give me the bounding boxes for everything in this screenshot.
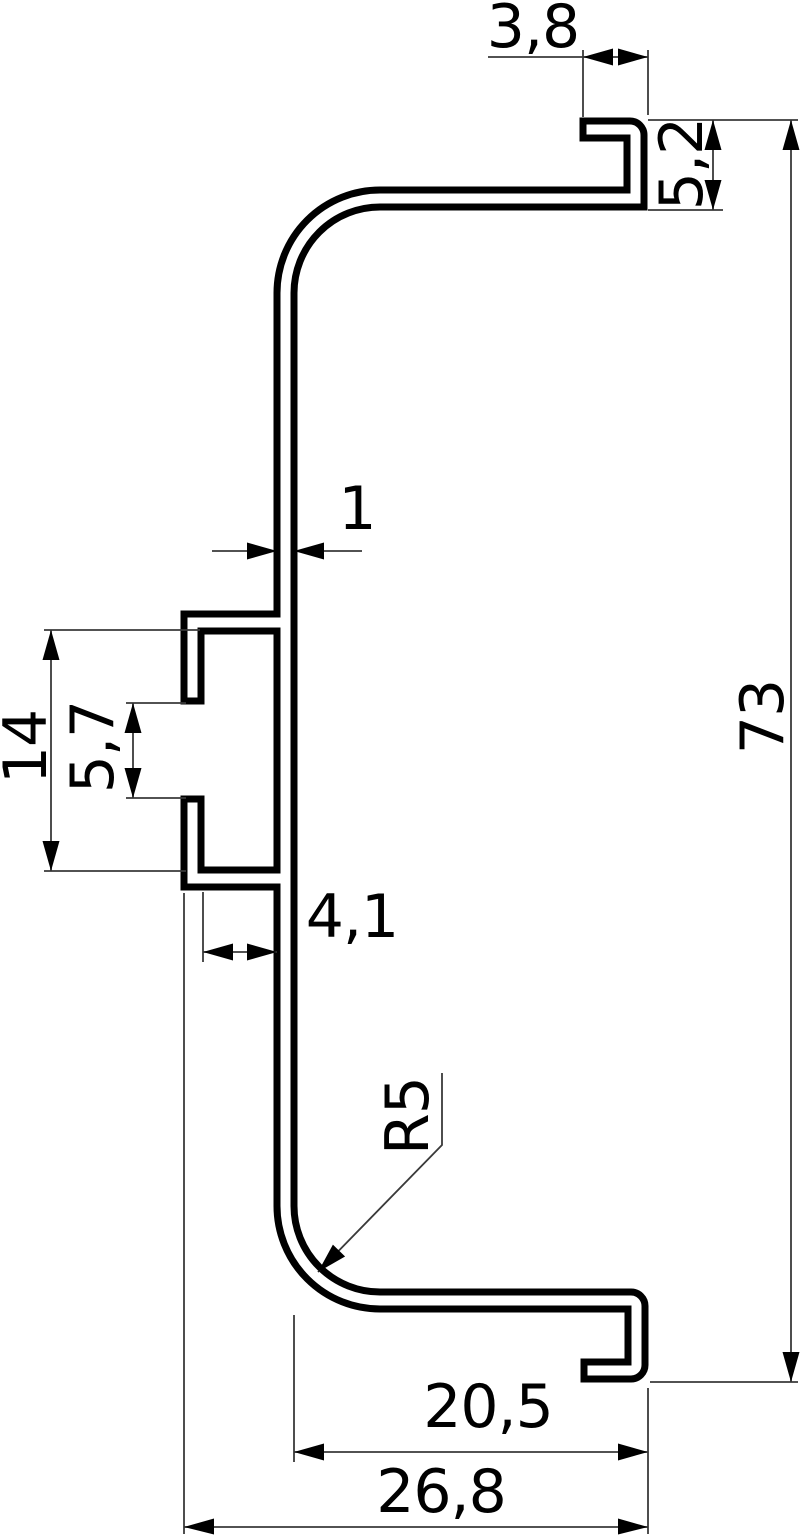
dimension-bottom-radius: R5 (318, 1073, 443, 1272)
dimension-label: 73 (728, 680, 798, 754)
arrowhead-left-icon (294, 1444, 324, 1461)
technical-drawing-page: 3,8 5,2 73 1 14 (0, 0, 800, 1535)
arrowhead-left-icon (294, 543, 324, 560)
arrowhead-right-icon (247, 944, 277, 961)
dimension-bottom-inner-width: 20,5 (294, 1315, 648, 1462)
arrowhead-left-icon (203, 944, 233, 961)
dimension-label: 14 (0, 710, 61, 784)
dimension-label: 26,8 (376, 1457, 506, 1527)
arrowhead-right-icon (618, 1519, 648, 1535)
arrowhead-right-icon (618, 49, 648, 66)
dimension-top-hook-width: 3,8 (487, 0, 648, 117)
dimension-label: R5 (373, 1077, 443, 1155)
arrowhead-right-icon (247, 543, 277, 560)
arrowhead-right-icon (618, 1444, 648, 1461)
dimension-overall-height: 73 (650, 120, 800, 1382)
dimension-label: 1 (338, 474, 375, 544)
arrowhead-down-icon (783, 1352, 800, 1382)
arrowhead-up-icon (783, 120, 800, 150)
dimension-label: 20,5 (423, 1372, 553, 1442)
technical-drawing-canvas: 3,8 5,2 73 1 14 (0, 0, 800, 1535)
dimension-label: 5,2 (647, 118, 717, 210)
arrowhead-left-icon (583, 49, 613, 66)
arrowhead-up-icon (43, 630, 60, 660)
dimension-label: 5,7 (58, 701, 128, 793)
dimension-label: 3,8 (487, 0, 579, 62)
dimension-clip-depth: 4,1 (203, 882, 398, 962)
dimension-bottom-outer-width: 26,8 (184, 893, 648, 1535)
arrowhead-left-icon (184, 1519, 214, 1535)
dimension-label: 4,1 (306, 882, 398, 952)
profile-cross-section-outline (184, 121, 645, 1379)
arrowhead-down-icon (43, 841, 60, 871)
dimension-clip-gap: 5,7 (58, 701, 186, 798)
dimension-top-hook-height: 5,2 (647, 118, 798, 210)
